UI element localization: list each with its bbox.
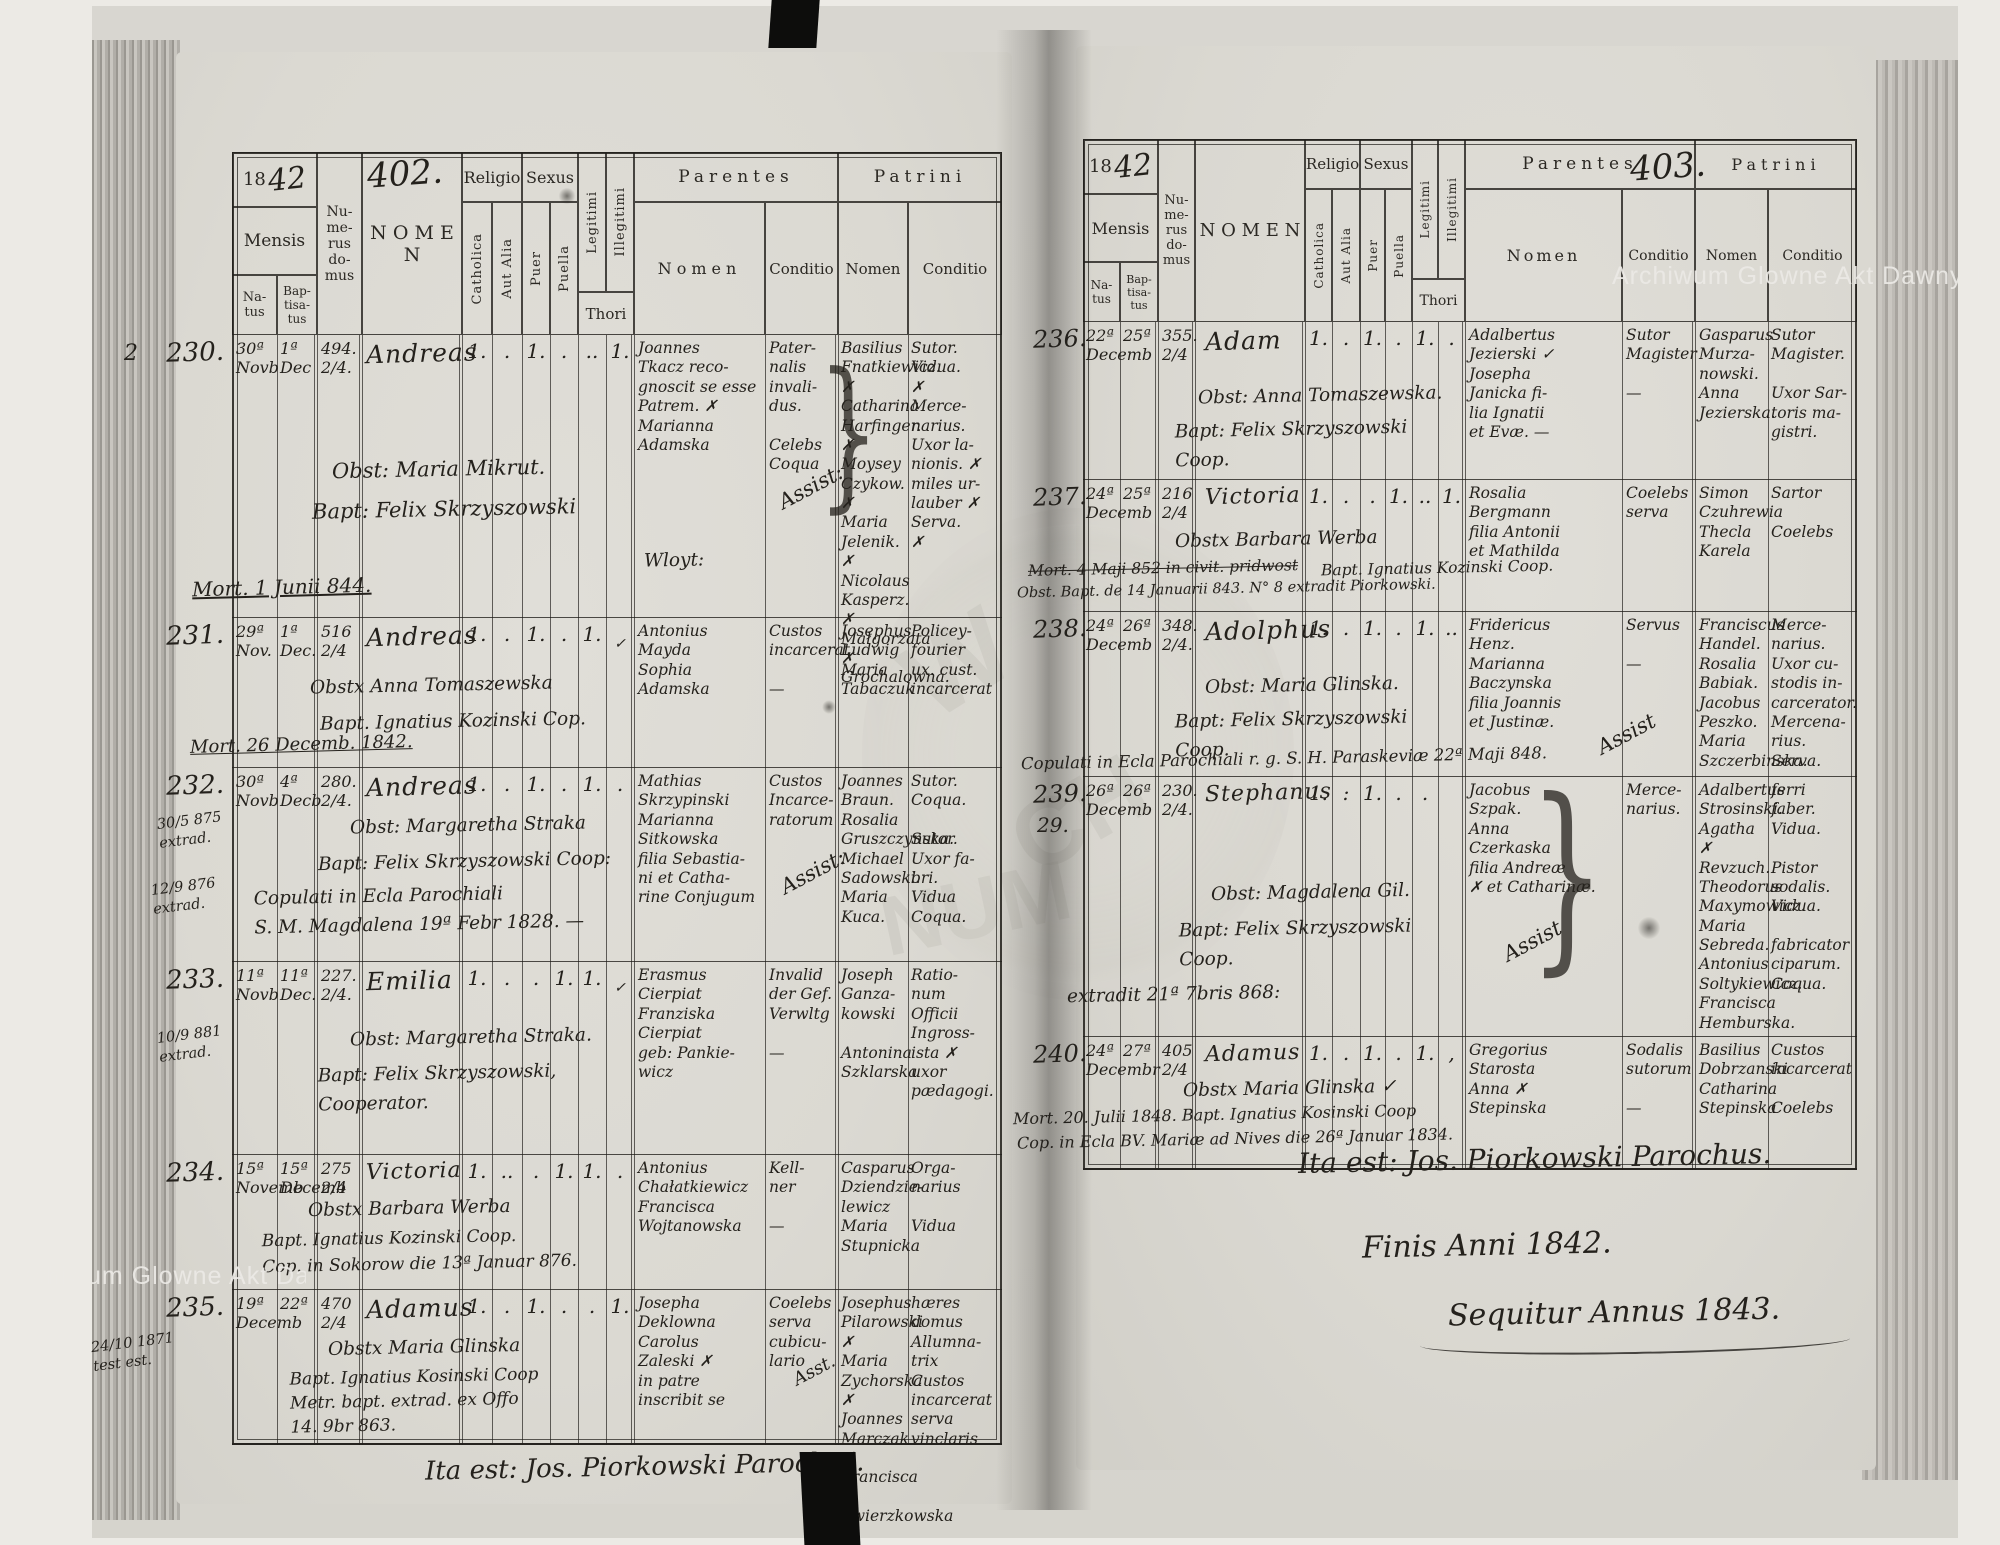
house-number: 348. 2/4. bbox=[1162, 616, 1196, 654]
patrini-nomen-header: Nomen bbox=[838, 202, 908, 335]
midwife-note: Obst: Margaretha Straka. bbox=[350, 1021, 592, 1055]
parentes-conditio: Merce- narius. bbox=[1626, 781, 1694, 820]
patrini-nomen: Simon Czuhrewia Thecla Karela bbox=[1699, 484, 1767, 562]
parentes-conditio: Servus — bbox=[1626, 616, 1694, 674]
entry-number: 240. bbox=[1033, 1039, 1078, 1069]
mark-aut-alia: . bbox=[1332, 616, 1360, 640]
death-note: Mort. 26 Decemb. 1842. bbox=[190, 731, 413, 758]
parentes-nomen: Fridericus Henz. Marianna Baczynska fili… bbox=[1469, 616, 1619, 732]
mark-catholica: 1. bbox=[1305, 616, 1332, 640]
parentes-label: Parentes bbox=[678, 167, 794, 187]
mark-legitimi: 1. bbox=[1412, 1041, 1438, 1065]
mark-puella: . bbox=[1385, 1041, 1412, 1065]
midwife-note: Obst: Maria Mikrut. bbox=[332, 451, 546, 488]
mark-legitimi: . bbox=[578, 1294, 606, 1318]
parentes-nomen-header: Nomen bbox=[634, 202, 765, 335]
parentes-conditio-header: Conditio bbox=[1622, 189, 1695, 322]
ink-blot bbox=[1638, 916, 1660, 940]
mark-catholica: 1. bbox=[463, 966, 491, 990]
year-handwritten: 42 bbox=[1112, 147, 1154, 186]
legitimi-header: Legitimi bbox=[578, 152, 606, 292]
register-row: 238. 24ª Decemb 26ª 348. 2/4. Adolphus 1… bbox=[1083, 612, 1857, 777]
baptisatus-date: 4ª Decb bbox=[280, 772, 316, 810]
midwife-note: Obst: Maria Glinska. bbox=[1205, 670, 1399, 703]
midwife-note: Obstx Barbara Werba bbox=[308, 1193, 511, 1226]
natus-header: Na- tus bbox=[1083, 262, 1120, 322]
mark-illegitimi: , bbox=[1438, 1041, 1465, 1065]
house-number: 494. 2/4. bbox=[321, 339, 361, 377]
baptizer-note: Bapt: Felix Skrzyszowski Coop. bbox=[1174, 414, 1408, 476]
patrini-conditio: hæres domus Allumna- trix Custos incarce… bbox=[911, 1294, 999, 1449]
puer-label: Puer bbox=[529, 251, 544, 286]
mark-legitimi: 1. bbox=[578, 622, 606, 646]
parentes-conditio: Kell- ner — bbox=[769, 1159, 837, 1237]
mark-puella: 1. bbox=[1385, 484, 1412, 508]
numerus-domus-header: Nu- me- rus do- mus bbox=[1158, 139, 1195, 322]
baptisatus-date: 27ª bbox=[1123, 1041, 1157, 1060]
puella-label: Puella bbox=[1392, 234, 1406, 278]
baptisatus-label: Bap- tisa- tus bbox=[1126, 273, 1151, 312]
finis-anni-line: Finis Anni 1842. bbox=[1362, 1225, 1612, 1265]
mark-aut-alia: .. bbox=[493, 1159, 521, 1183]
register-row: 231. 29ª Nov. 1ª Dec. 516 2/4 Andreas 1.… bbox=[232, 618, 1002, 768]
patrini-nomen: Basilius Dobrzanski Catharina Stepinska bbox=[1699, 1041, 1767, 1119]
baptizer-note: Bapt. Ignatius Kozinski Coop. Cop. in So… bbox=[261, 1222, 577, 1281]
page-number-right: 403. bbox=[1629, 144, 1707, 189]
register-row: 232. 30/5 875 extrad. 12/9 876 extrad. 3… bbox=[232, 768, 1002, 962]
child-name: Stephanus bbox=[1205, 780, 1306, 809]
catholica-header: Catholica bbox=[462, 202, 492, 335]
puer-label: Puer bbox=[1366, 239, 1380, 272]
mark-legitimi: 1. bbox=[578, 966, 606, 990]
baptizer-note: Bapt: Felix Skrzyszowski Coop: bbox=[318, 845, 612, 880]
entry-number: 234. bbox=[153, 1157, 224, 1189]
midwife-note: Obstx Barbara Werba bbox=[1175, 524, 1378, 557]
patrini-nomen-label: Nomen bbox=[846, 260, 901, 278]
thori-label: Thori bbox=[586, 305, 627, 323]
archive-watermark-top-right: Archiwum Glowne Akt Dawnych bbox=[1612, 262, 1992, 291]
baptisatus-date: 1ª Dec bbox=[280, 339, 316, 377]
patrini-label: Patrini bbox=[874, 167, 967, 187]
puella-label: Puella bbox=[557, 245, 572, 292]
midwife-note: Obstx Anna Tomaszewska bbox=[310, 669, 553, 703]
parentes-header: Parentes bbox=[634, 152, 838, 202]
patrini-nomen: Joannes Braun. Rosalia Gruszczynska. Mic… bbox=[841, 772, 907, 927]
margin-note: 12/9 876 extrad. bbox=[150, 874, 219, 919]
year-printed: 18 bbox=[243, 169, 266, 190]
register-table-right: 403. 18 42 Mensis Na- tus Bap- tisa- tus… bbox=[1083, 139, 1857, 1170]
patrini-conditio: Sartor Coelebs bbox=[1771, 484, 1855, 542]
mark-illegitimi: . bbox=[606, 772, 634, 796]
baptisatus-header: Bap- tisa- tus bbox=[277, 275, 317, 335]
patrini-header: Patrini bbox=[1695, 139, 1857, 189]
baptisatus-date: 25ª bbox=[1123, 484, 1157, 503]
mark-legitimi: .. bbox=[1412, 484, 1438, 508]
register-row: 230. 2 30ª Novb 1ª Dec 494. 2/4. Andreas… bbox=[232, 335, 1002, 618]
aut-alia-header: Aut Alia bbox=[492, 202, 522, 335]
assist-note: Assist: bbox=[776, 845, 849, 899]
margin-note: 10/9 881 extrad. bbox=[156, 1022, 225, 1067]
mark-puer: . bbox=[522, 1159, 550, 1183]
baptisatus-label: Bap- tisa- tus bbox=[283, 284, 311, 326]
parentes-nomen: Gregorius Starosta Anna ✗ Stepinska bbox=[1469, 1041, 1619, 1119]
register-row: 236. 22ª Decemb 25ª 355. 2/4 Adam 1. . 1… bbox=[1083, 322, 1857, 480]
puer-header: Puer bbox=[1360, 189, 1385, 322]
thori-header: Thori bbox=[578, 292, 634, 335]
child-name: Adamus bbox=[366, 1293, 463, 1326]
register-row: 239. 29. 26ª Decemb 26ª 230. 2/4. Stepha… bbox=[1083, 777, 1857, 1037]
baptisatus-date: 15ª Decemb bbox=[280, 1159, 316, 1197]
nomen-label: N O M E N bbox=[363, 222, 461, 266]
legitimi-header: Legitimi bbox=[1412, 139, 1438, 279]
mark-aut-alia: . bbox=[493, 772, 521, 796]
mark-aut-alia: . bbox=[1332, 326, 1360, 350]
mark-legitimi: 1. bbox=[1412, 616, 1438, 640]
mark-aut-alia: . bbox=[493, 622, 521, 646]
ink-blot bbox=[822, 700, 836, 714]
child-name: Andreas bbox=[366, 771, 463, 804]
aut-alia-header: Aut Alia bbox=[1332, 189, 1360, 322]
natus-date: 24ª Decembr bbox=[1086, 1041, 1121, 1079]
parentes-nomen: Josepha Deklowna Carolus Zaleski ✗ in pa… bbox=[638, 1294, 762, 1410]
mensis-label: Mensis bbox=[244, 231, 305, 251]
archive-watermark-bottom-left: Archiwum Glowne Akt Dawnych bbox=[6, 1262, 306, 1291]
spine-marker-top bbox=[768, 0, 819, 48]
mark-puer: 1. bbox=[522, 339, 550, 363]
mark-catholica: 1. bbox=[463, 1294, 491, 1318]
natus-date: 30ª Novb bbox=[236, 772, 278, 810]
patrini-nomen: Joseph Ganza- kowski Antonina Szklarska bbox=[841, 966, 907, 1082]
patrini-conditio: ferri faber. Vidua. Pistor sodalis. Vidu… bbox=[1771, 781, 1855, 994]
spine-marker-bottom bbox=[800, 1452, 861, 1545]
catholica-label: Catholica bbox=[1312, 222, 1326, 289]
patrini-conditio: Sutor. Vidua. ✗ Merce- narius. Uxor la- … bbox=[911, 339, 999, 552]
numerus-label: Nu- me- rus do- mus bbox=[325, 204, 354, 284]
patrini-conditio: Orga- narius Vidua bbox=[911, 1159, 999, 1237]
brace-mark: } bbox=[818, 351, 879, 514]
mark-puella: . bbox=[550, 622, 578, 646]
sexus-header: Sexus bbox=[1360, 139, 1412, 189]
register-row: 234. 15ª Novemb 15ª Decemb 275 2/4 Victo… bbox=[232, 1155, 1002, 1290]
numerus-domus-header: Nu- me- rus do- mus bbox=[317, 152, 362, 335]
child-name: Adamus bbox=[1205, 1040, 1306, 1069]
mark-catholica: 1. bbox=[1305, 781, 1332, 805]
baptisatus-date: 1ª Dec. bbox=[280, 622, 316, 660]
religio-header: Religio bbox=[462, 152, 522, 202]
child-name: Andreas bbox=[366, 338, 463, 371]
mark-puella: . bbox=[550, 339, 578, 363]
mark-puella: . bbox=[1385, 781, 1412, 805]
year-cell: 18 42 bbox=[1083, 139, 1158, 194]
baptizer-note: Bapt: Felix Skrzyszowski Coop. bbox=[1178, 913, 1412, 975]
parentes-nomen: Joannes Tkacz reco- gnoscit se esse Patr… bbox=[638, 339, 762, 455]
parentes-conditio: Coelebs serva bbox=[1626, 484, 1694, 523]
parentes-conditio: Sutor Magister — bbox=[1626, 326, 1694, 404]
aut-alia-label: Aut Alia bbox=[500, 238, 515, 299]
mark-puella: . bbox=[550, 1294, 578, 1318]
mark-puer: 1. bbox=[522, 1294, 550, 1318]
natus-date: 24ª Decemb bbox=[1086, 616, 1121, 654]
entry-number: 235. bbox=[153, 1292, 224, 1324]
mark-catholica: 1. bbox=[463, 1159, 491, 1183]
brace-mark: } bbox=[1529, 775, 1605, 979]
patrini-conditio: Sutor. Coqua. Sutor. Uxor fa- bri. Vidua… bbox=[911, 772, 999, 927]
mark-puer: 1. bbox=[522, 772, 550, 796]
mark-catholica: 1. bbox=[463, 622, 491, 646]
entry-number: 231. bbox=[153, 620, 224, 652]
patrini-conditio: Sutor Magister. Uxor Sar- toris ma- gist… bbox=[1771, 326, 1855, 442]
mark-legitimi: .. bbox=[578, 339, 606, 363]
entry-number: 238. bbox=[1033, 614, 1078, 644]
illegitimi-header: Illegitimi bbox=[1438, 139, 1465, 279]
baptizer-note: Bapt: Felix Skrzyszowski, Cooperator. bbox=[317, 1058, 557, 1120]
sequitur-annus-line: Sequitur Annus 1843. bbox=[1448, 1292, 1781, 1334]
legitimi-label: Legitimi bbox=[1418, 180, 1432, 238]
page-number-left: 402. bbox=[366, 151, 444, 196]
mensis-label: Mensis bbox=[1092, 219, 1150, 238]
child-name: Victoria bbox=[1205, 483, 1306, 512]
parentes-nomen: Rosalia Bergmann filia Antonii et Mathil… bbox=[1469, 484, 1619, 562]
patrini-nomen: Franciscus Handel. Rosalia Babiak. Jacob… bbox=[1699, 616, 1767, 771]
mark-illegitimi: 1. bbox=[606, 339, 634, 363]
puer-header: Puer bbox=[522, 202, 550, 335]
parentes-nomen-label: Nomen bbox=[658, 259, 742, 278]
house-number: 227. 2/4. bbox=[321, 966, 361, 1004]
nomen-header: N O M E N bbox=[1195, 139, 1305, 322]
mark-catholica: 1. bbox=[1305, 1041, 1332, 1065]
mensis-header: Mensis bbox=[232, 207, 317, 275]
mark-catholica: 1. bbox=[1305, 484, 1332, 508]
midwife-note: Obstx Maria Glinska bbox=[328, 1332, 521, 1365]
entry-number: 232. bbox=[153, 770, 224, 802]
patrini-nomen: Adalbertus Strosinski. Agatha ✗ Revzuch.… bbox=[1699, 781, 1767, 1033]
parentes-conditio: Custos incarcerat — bbox=[769, 622, 837, 700]
natus-date: 15ª Novemb bbox=[236, 1159, 278, 1197]
sexus-label: Sexus bbox=[526, 168, 574, 187]
mark-puella: . bbox=[1385, 326, 1412, 350]
marriage-note: Copulati in Ecla Parochiali S. M. Magdal… bbox=[253, 879, 584, 943]
register-table-left: 402. 18 42 Mensis Na- tus Bap- tisa- tus… bbox=[232, 152, 1002, 1445]
patrini-header: Patrini bbox=[838, 152, 1002, 202]
parentes-nomen: Erasmus Cierpiat Franziska Cierpiat geb:… bbox=[638, 966, 762, 1082]
year-printed: 18 bbox=[1089, 156, 1112, 177]
illegitimi-label: Illegitimi bbox=[613, 187, 628, 257]
religio-label: Religio bbox=[1306, 155, 1359, 173]
margin-note: 30/5 875 extrad. bbox=[156, 808, 225, 853]
illegitimi-header: Illegitimi bbox=[606, 152, 634, 292]
margin-digit: 2 bbox=[124, 341, 138, 366]
baptisatus-date: 11ª Dec. bbox=[280, 966, 316, 1004]
mark-illegitimi: ✓ bbox=[606, 636, 634, 652]
mark-puella: 1. bbox=[550, 966, 578, 990]
register-row: 233. 10/9 881 extrad. 11ª Novb 11ª Dec. … bbox=[232, 962, 1002, 1155]
mark-legitimi: 1. bbox=[578, 1159, 606, 1183]
ink-blot bbox=[558, 188, 576, 204]
mark-legitimi: . bbox=[1412, 781, 1438, 805]
parentes-nomen: Antonius Chałatkiewicz Francisca Wojtano… bbox=[638, 1159, 762, 1237]
house-number: 405 2/4 bbox=[1162, 1041, 1196, 1079]
parentes-nomen: Mathias Skrzypinski Marianna Sitkowska f… bbox=[638, 772, 762, 908]
religio-header: Religio bbox=[1305, 139, 1360, 189]
parentes-conditio: Custos Incarce- ratorum bbox=[769, 772, 837, 830]
mensis-header: Mensis bbox=[1083, 194, 1158, 262]
parentes-nomen: Adalbertus Jezierski ✓ Josepha Janicka f… bbox=[1469, 326, 1619, 442]
mark-illegitimi: . bbox=[606, 1159, 634, 1183]
mark-illegitimi: 1. bbox=[606, 1294, 634, 1318]
mark-illegitimi: .. bbox=[1438, 616, 1465, 640]
patrini-nomen: Josephus Ludwig Maria Tabaczuk bbox=[841, 622, 907, 700]
baptisatus-date: 22ª bbox=[280, 1294, 316, 1313]
baptisatus-date: 25ª bbox=[1123, 326, 1157, 345]
entry-number: 230. bbox=[153, 337, 224, 369]
mark-aut-alia: . bbox=[493, 966, 521, 990]
mark-puella: 1. bbox=[550, 1159, 578, 1183]
thori-header: Thori bbox=[1412, 279, 1465, 322]
mark-legitimi: 1. bbox=[1412, 326, 1438, 350]
patrini-conditio-label: Conditio bbox=[923, 260, 987, 278]
mark-puer: 1. bbox=[1360, 616, 1385, 640]
natus-date: 19ª Decemb bbox=[236, 1294, 278, 1332]
parentes-label: Parentes bbox=[1522, 154, 1638, 174]
extract-note: extradit 21ª 7bris 868: bbox=[1067, 979, 1281, 1012]
house-number: 216 2/4 bbox=[1162, 484, 1196, 522]
mark-aut-alia: . bbox=[493, 1294, 521, 1318]
patrini-conditio-header: Conditio bbox=[908, 202, 1002, 335]
natus-date: 30ª Novb bbox=[236, 339, 278, 377]
house-number: 355. 2/4 bbox=[1162, 326, 1196, 364]
baptizer-note: Bapt: Felix Skrzyszowski bbox=[312, 490, 577, 528]
patrini-nomen-header: Nomen bbox=[1695, 189, 1768, 322]
thori-label: Thori bbox=[1420, 293, 1458, 309]
parentes-conditio-label: Conditio bbox=[769, 260, 833, 278]
parentes-nomen-label: Nomen bbox=[1507, 246, 1581, 265]
catholica-label: Catholica bbox=[470, 233, 485, 304]
child-name: Adam bbox=[1205, 325, 1306, 358]
register-row: 235. 24/10 1871 test est. 19ª Decemb 22ª… bbox=[232, 1290, 1002, 1445]
entry-number: 236. bbox=[1033, 324, 1078, 354]
child-name: Victoria bbox=[366, 1158, 463, 1187]
house-number: 230. 2/4. bbox=[1162, 781, 1196, 819]
mark-puer: 1. bbox=[522, 622, 550, 646]
natus-date: 26ª Decemb bbox=[1086, 781, 1121, 819]
patrini-label: Patrini bbox=[1731, 155, 1820, 174]
patrini-conditio: Policey- fourier ux. cust. incarcerat bbox=[911, 622, 999, 700]
natus-header: Na- tus bbox=[232, 275, 277, 335]
mark-catholica: 1. bbox=[463, 772, 491, 796]
mark-catholica: 1. bbox=[463, 339, 491, 363]
mark-puer: 1. bbox=[1360, 1041, 1385, 1065]
religio-label: Religio bbox=[464, 168, 521, 187]
numerus-label: Nu- me- rus do- mus bbox=[1163, 193, 1190, 268]
mark-aut-alia: . bbox=[1332, 1041, 1360, 1065]
baptizer-note: Bapt. Ignatius Kosinski Coop Metr. bapt.… bbox=[289, 1363, 539, 1440]
mark-aut-alia: . bbox=[493, 339, 521, 363]
natus-label: Na- tus bbox=[243, 290, 267, 320]
death-note: Mort. 1 Junii 844. bbox=[192, 573, 372, 602]
patrini-nomen: Casparus Dziendzie- lewicz Maria Stupnic… bbox=[841, 1159, 907, 1256]
baptisatus-date: 26ª bbox=[1123, 781, 1157, 800]
margin-digit: 29. bbox=[1037, 813, 1069, 837]
illegitimi-label: Illegitimi bbox=[1445, 177, 1459, 242]
midwife-note: Obst: Anna Tomaszewska. bbox=[1198, 379, 1443, 413]
year-handwritten: 42 bbox=[266, 160, 308, 199]
patrini-conditio: Custos incarcerat Coelebs bbox=[1771, 1041, 1855, 1119]
parentes-conditio-header: Conditio bbox=[765, 202, 838, 335]
mark-puella: . bbox=[550, 772, 578, 796]
midwife-note: Obst: Margaretha Straka bbox=[350, 810, 587, 844]
patrini-conditio-header: Conditio bbox=[1768, 189, 1857, 322]
mark-puer: 1. bbox=[1360, 326, 1385, 350]
entry-number: 239. bbox=[1033, 779, 1078, 809]
mark-legitimi: 1. bbox=[578, 772, 606, 796]
baptisatus-date: 26ª bbox=[1123, 616, 1157, 635]
mark-puer: . bbox=[522, 966, 550, 990]
natus-label: Na- tus bbox=[1091, 278, 1113, 306]
legitimi-label: Legitimi bbox=[585, 191, 600, 254]
house-number: 275 2/4 bbox=[321, 1159, 361, 1197]
house-number: 516 2/4 bbox=[321, 622, 361, 660]
midwife-note: Obst: Magdalena Gil. bbox=[1211, 877, 1410, 910]
mark-illegitimi: 1. bbox=[1438, 484, 1465, 508]
mark-aut-alia: . bbox=[1332, 484, 1360, 508]
puella-header: Puella bbox=[1385, 189, 1412, 322]
mark-illegitimi: . bbox=[1438, 326, 1465, 350]
catholica-header: Catholica bbox=[1305, 189, 1332, 322]
nomen-label: N O M E N bbox=[1200, 220, 1301, 241]
register-row: 237. 24ª Decemb 25ª 216 2/4 Victoria 1. … bbox=[1083, 480, 1857, 612]
natus-date: 11ª Novb bbox=[236, 966, 278, 1004]
parentes-nomen: Antonius Mayda Sophia Adamska bbox=[638, 622, 762, 700]
entry-number: 237. bbox=[1033, 482, 1078, 512]
mark-puer: 1. bbox=[1360, 781, 1385, 805]
parentes-conditio: Invalid der Gef. Verwltg — bbox=[769, 966, 837, 1063]
mark-illegitimi: ✓ bbox=[606, 980, 634, 996]
child-name: Emilia bbox=[366, 965, 463, 998]
patrini-conditio: Ratio- num Officii Ingross- ista ✗ uxor … bbox=[911, 966, 999, 1102]
entry-number: 233. bbox=[153, 964, 224, 996]
puella-header: Puella bbox=[550, 202, 578, 335]
scanned-register-page: W CH NUM 402. 18 42 Mensis Na- tus Bap- … bbox=[0, 0, 2000, 1545]
clerk-note: Wloyt: bbox=[644, 546, 705, 576]
natus-date: 24ª Decemb bbox=[1086, 484, 1121, 522]
patrini-conditio: Merce- narius. Uxor cu- stodis in- carce… bbox=[1771, 616, 1855, 771]
child-name: Andreas bbox=[366, 621, 463, 654]
aut-alia-label: Aut Alia bbox=[1339, 227, 1353, 284]
sexus-label: Sexus bbox=[1364, 155, 1409, 173]
patrini-nomen: Gasparus Murza- nowski. Anna Jezierska. bbox=[1699, 326, 1767, 423]
natus-date: 29ª Nov. bbox=[236, 622, 278, 660]
child-name: Adolphus bbox=[1205, 615, 1306, 648]
mark-puella: . bbox=[1385, 616, 1412, 640]
house-number: 470 2/4 bbox=[321, 1294, 361, 1332]
mark-aut-alia: : bbox=[1332, 781, 1360, 805]
year-cell: 18 42 bbox=[232, 152, 317, 207]
mark-puer: . bbox=[1360, 484, 1385, 508]
house-number: 280. 2/4. bbox=[321, 772, 361, 810]
parentes-nomen-header: Nomen bbox=[1465, 189, 1622, 322]
mark-catholica: 1. bbox=[1305, 326, 1332, 350]
baptisatus-header: Bap- tisa- tus bbox=[1120, 262, 1158, 322]
natus-date: 22ª Decemb bbox=[1086, 326, 1121, 364]
parentes-conditio: Sodalis sutorum — bbox=[1626, 1041, 1694, 1119]
